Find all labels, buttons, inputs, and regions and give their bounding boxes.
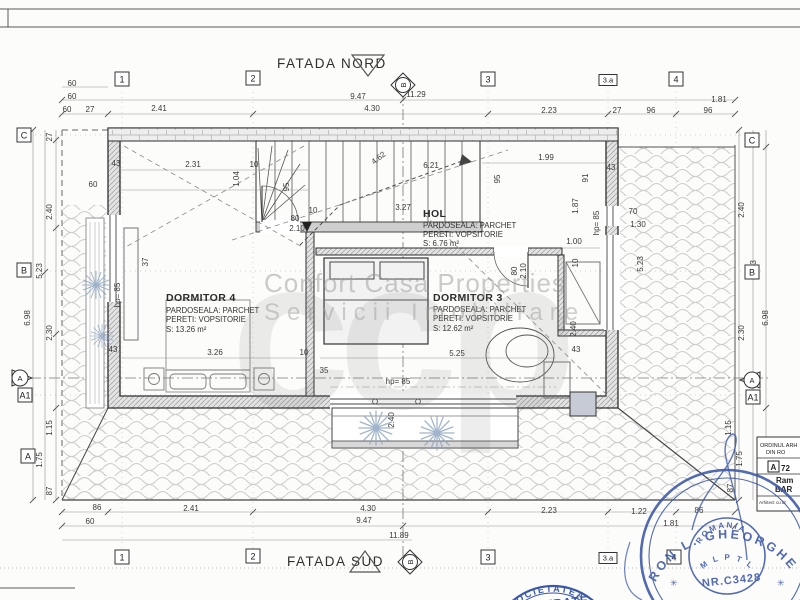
dim-label: 2.41 — [183, 504, 199, 513]
dim-label: 2.31 — [185, 160, 201, 169]
dim-label: 10 — [300, 348, 309, 357]
grid-marker: A — [740, 372, 760, 388]
svg-text:A: A — [749, 376, 754, 385]
dim-label: 5.23 — [35, 263, 44, 279]
dim-label: 70 — [629, 207, 638, 216]
dim-label: 80 — [291, 214, 300, 223]
dim-label: 96 — [704, 106, 713, 115]
svg-text:C: C — [749, 135, 756, 145]
dim-label: 1.99 — [538, 153, 554, 162]
svg-text:2: 2 — [250, 551, 255, 561]
dim-label: 27 — [45, 132, 54, 141]
dim-label: 2.41 — [151, 104, 167, 113]
svg-text:A1: A1 — [747, 392, 758, 402]
svg-text:A1: A1 — [19, 390, 30, 400]
dim-label: 3.27 — [395, 203, 411, 212]
dim-label: hp= 85 — [592, 210, 601, 235]
svg-text:1: 1 — [119, 552, 124, 562]
svg-text:4: 4 — [673, 74, 678, 84]
room-name: DORMITOR 4 — [166, 292, 236, 304]
svg-text:1: 1 — [119, 74, 124, 84]
dim-label: 2.40 — [45, 204, 54, 220]
svg-text:3: 3 — [485, 74, 490, 84]
grid-marker: C — [745, 133, 759, 147]
dim-label: hp= 85 — [386, 377, 411, 386]
grid-marker: A — [21, 449, 35, 463]
dim-label: 37 — [141, 257, 150, 266]
dim-label: 95 — [493, 174, 502, 183]
dim-label: 2.10 — [289, 224, 305, 233]
dim-label: 86 — [93, 503, 102, 512]
dim-label: 43 — [607, 163, 616, 172]
floor-plan-drawing: FATADA NORD FATADA SUD DORMITOR 4 PARDOS… — [0, 0, 800, 600]
grid-marker: 2 — [246, 71, 260, 85]
grid-marker: 3 — [481, 550, 495, 564]
facade-north-label: FATADA NORD — [277, 56, 387, 71]
grid-marker: B — [398, 550, 422, 574]
dim-label: 43 — [572, 345, 581, 354]
svg-text:B: B — [749, 267, 755, 277]
grid-marker: B — [745, 265, 759, 279]
dim-label: 2.30 — [737, 325, 746, 341]
grid-marker: 1 — [115, 72, 129, 86]
grid-marker: A1 — [746, 390, 760, 404]
grid-marker: A — [12, 370, 32, 386]
dim-label: 11.89 — [389, 531, 409, 540]
dim-label: 1.30 — [630, 220, 646, 229]
dim-label: 95 — [282, 182, 291, 191]
dim-label: 87 — [45, 486, 54, 495]
dim-label: 4.30 — [364, 104, 380, 113]
svg-text:B: B — [406, 559, 415, 564]
stamp-flourish — [625, 542, 642, 600]
dim-label: 1.04 — [232, 171, 241, 187]
dim-label: 9.47 — [356, 516, 372, 525]
dim-label: 5.25 — [449, 349, 465, 358]
plant-icon — [82, 271, 110, 299]
dim-label: 6.98 — [23, 310, 32, 326]
svg-text:A: A — [25, 451, 31, 461]
dim-label: 2.23 — [541, 506, 557, 515]
dim-label: 2.23 — [541, 106, 557, 115]
dim-label: 1.15 — [45, 420, 54, 436]
svg-text:C: C — [21, 130, 28, 140]
titleblock-badge-num: 72 — [781, 464, 790, 473]
dim-label: 1.00 — [566, 237, 582, 246]
svg-text:3: 3 — [485, 552, 490, 562]
dim-label: 60 — [89, 180, 98, 189]
dim-label: 1.87 — [571, 198, 580, 214]
dim-label: 1.81 — [711, 95, 727, 104]
dim-label: 3.26 — [207, 348, 223, 357]
dim-label: 96 — [647, 106, 656, 115]
titleblock-name1: Ram — [776, 476, 793, 485]
grid-marker: 3.a — [599, 75, 617, 86]
dim-label: 2.10 — [519, 263, 528, 279]
grid-marker: 2 — [246, 549, 260, 563]
dim-label: hp= 85 — [113, 282, 122, 307]
dim-label: 1.81 — [663, 519, 679, 528]
grid-marker: B — [17, 263, 31, 277]
dim-label: 91 — [581, 173, 590, 182]
svg-text:3.a: 3.a — [603, 76, 614, 85]
dim-label: 10 — [250, 160, 259, 169]
svg-text:3.a: 3.a — [603, 554, 614, 563]
grid-marker: 4 — [669, 72, 683, 86]
dim-label: 4.30 — [360, 504, 376, 513]
dim-label: 43 — [112, 159, 121, 168]
dim-label: 10 — [309, 206, 318, 215]
floor-plan-sheet: FATADA NORD FATADA SUD DORMITOR 4 PARDOS… — [0, 0, 800, 600]
dim-label: 60 — [68, 79, 77, 88]
grid-marker: C — [17, 128, 31, 142]
dim-label: 2.40 — [569, 321, 578, 337]
titleblock-line1: ORDINUL ARH — [760, 443, 797, 449]
watermark-line2: Servicii Imobiliare — [264, 299, 585, 326]
dim-label: 60 — [86, 517, 95, 526]
dim-label: 1.75 — [35, 452, 44, 468]
dim-label: 2.40 — [387, 412, 396, 428]
dim-label: 6.98 — [761, 310, 770, 326]
dim-label: 9.47 — [350, 92, 366, 101]
stamp-star-right: ✳ — [777, 578, 785, 588]
svg-text:2: 2 — [250, 73, 255, 83]
grid-marker: A1 — [18, 388, 32, 402]
grid-marker: 1 — [115, 550, 129, 564]
dim-label: 35 — [320, 366, 329, 375]
dim-label: 60 — [68, 92, 77, 101]
svg-text:A: A — [17, 374, 22, 383]
dim-label: 1.22 — [631, 507, 647, 516]
stamp-star-left: ✳ — [670, 578, 678, 588]
svg-text:B: B — [21, 265, 27, 275]
dim-label: 80 — [510, 266, 519, 275]
dim-label: 27 — [613, 106, 622, 115]
room-area: S: 13.26 m² — [166, 325, 207, 334]
dim-label: 6.21 — [423, 161, 439, 170]
titleblock-line2: DIN RO — [766, 450, 786, 456]
grid-marker: 3 — [481, 72, 495, 86]
dim-label: 1.15 — [724, 420, 733, 436]
dim-label: 4.62 — [370, 149, 388, 166]
dim-label: 27 — [86, 105, 95, 114]
watermark: ccp Confort Casa Properties Servicii Imo… — [231, 213, 585, 454]
dim-label: 2.30 — [45, 325, 54, 341]
society-stamp: SOCIETATEA SUBSTRATE — [485, 578, 622, 600]
dim-label: 5.23 — [636, 256, 645, 272]
watermark-logo: ccp — [231, 213, 569, 454]
svg-text:B: B — [399, 82, 408, 87]
dim-label: 1.75 — [735, 451, 744, 467]
titleblock-badge: A — [771, 463, 777, 472]
dim-label: 10 — [571, 258, 580, 267]
dim-label: 2.40 — [737, 202, 746, 218]
dim-label: 43 — [109, 345, 118, 354]
grid-marker: 3.a — [599, 553, 617, 564]
stamp-number: NR.C3428 — [701, 572, 761, 590]
